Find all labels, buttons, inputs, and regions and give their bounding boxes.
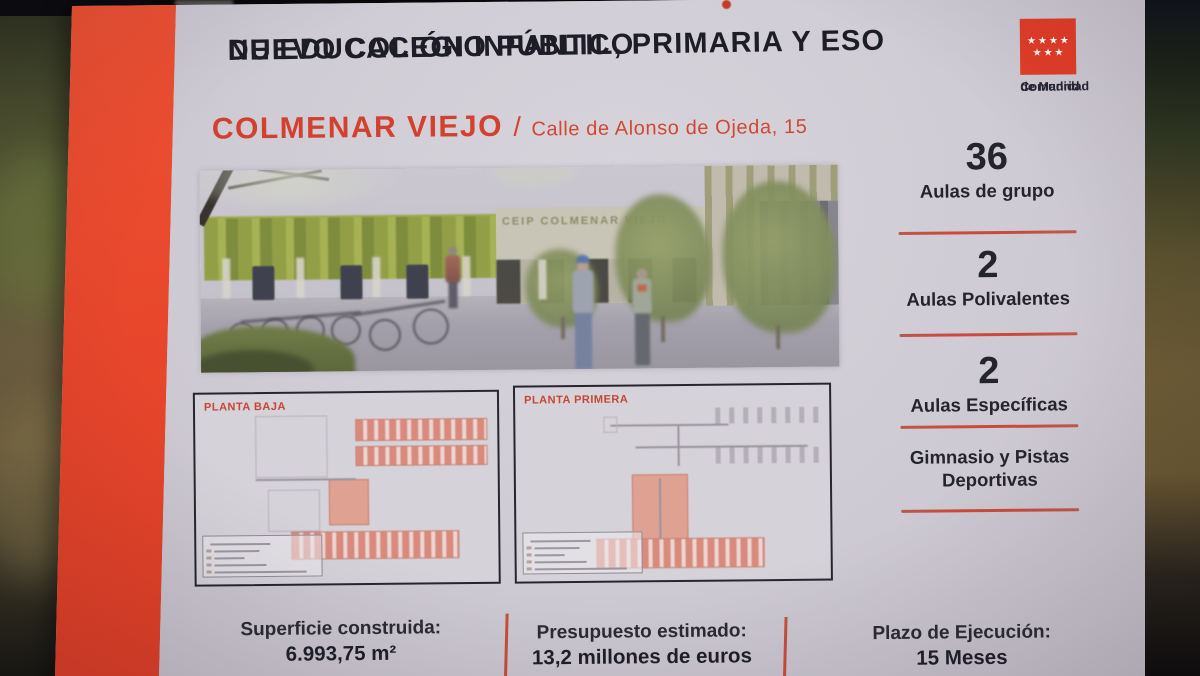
footer-value: 15 Meses — [834, 644, 1090, 672]
fastener-dot — [722, 0, 731, 9]
render-image: CEIP COLMENAR VIEJO — [199, 165, 839, 373]
footer-superficie: Superficie construida: 6.993,75 m² — [201, 616, 482, 669]
madrid-logo: ★★★★ ★★★ Comunidad de Madrid — [1020, 18, 1141, 80]
slash-separator: / — [507, 112, 527, 142]
stat-value: 2 — [893, 244, 1083, 286]
footer-label: Presupuesto estimado: — [511, 619, 773, 646]
footer-label: Plazo de Ejecución: — [834, 620, 1090, 646]
stat-value: 36 — [892, 136, 1082, 178]
plan-label: PLANTA PRIMERA — [524, 394, 628, 407]
photo-of-sign: NUEVO COLEGIO PÚBLICO DE EDUCACIÓN INFAN… — [0, 0, 1200, 676]
street-address: Calle de Alonso de Ojeda, 15 — [531, 116, 807, 141]
stat-label: Aulas Específicas — [894, 392, 1084, 417]
stars-row-bottom: ★★★ — [1031, 47, 1066, 58]
stat-label: Aulas de grupo — [892, 178, 1082, 203]
footer-label: Superficie construida: — [201, 616, 481, 643]
stat-aulas-grupo: 36 Aulas de grupo — [892, 136, 1083, 203]
background-field-right — [1145, 0, 1200, 676]
plan-legend — [202, 534, 322, 577]
madrid-flag-icon: ★★★★ ★★★ — [1020, 18, 1077, 75]
floor-plan-planta-primera: PLANTA PRIMERA — [513, 383, 833, 584]
plan-legend — [522, 531, 642, 574]
stat-aulas-polivalentes: 2 Aulas Polivalentes — [893, 244, 1084, 311]
stat-gimnasio: Gimnasio y Pistas Deportivas — [895, 442, 1086, 492]
stars-row-top: ★★★★ — [1025, 35, 1071, 46]
footer-plazo: Plazo de Ejecución: 15 Meses — [834, 620, 1091, 672]
plan-label: PLANTA BAJA — [204, 401, 286, 414]
stat-value: 2 — [894, 350, 1084, 392]
footer-presupuesto: Presupuesto estimado: 13,2 millones de e… — [511, 619, 774, 671]
logo-text-line2: de Madrid — [1020, 79, 1079, 94]
stat-label: Gimnasio y Pistas Deportivas — [895, 444, 1085, 492]
floor-plan-planta-baja: PLANTA BAJA — [193, 390, 501, 587]
sign-board: NUEVO COLEGIO PÚBLICO DE EDUCACIÓN INFAN… — [54, 0, 1167, 676]
red-side-stripe — [54, 5, 176, 676]
footer-value: 6.993,75 m² — [201, 640, 481, 669]
stat-aulas-especificas: 2 Aulas Específicas — [894, 350, 1085, 417]
photo-haze — [199, 165, 839, 373]
city-name: COLMENAR VIEJO — [212, 110, 503, 146]
stat-label: Aulas Polivalentes — [893, 286, 1083, 311]
footer-value: 13,2 millones de euros — [511, 643, 773, 672]
